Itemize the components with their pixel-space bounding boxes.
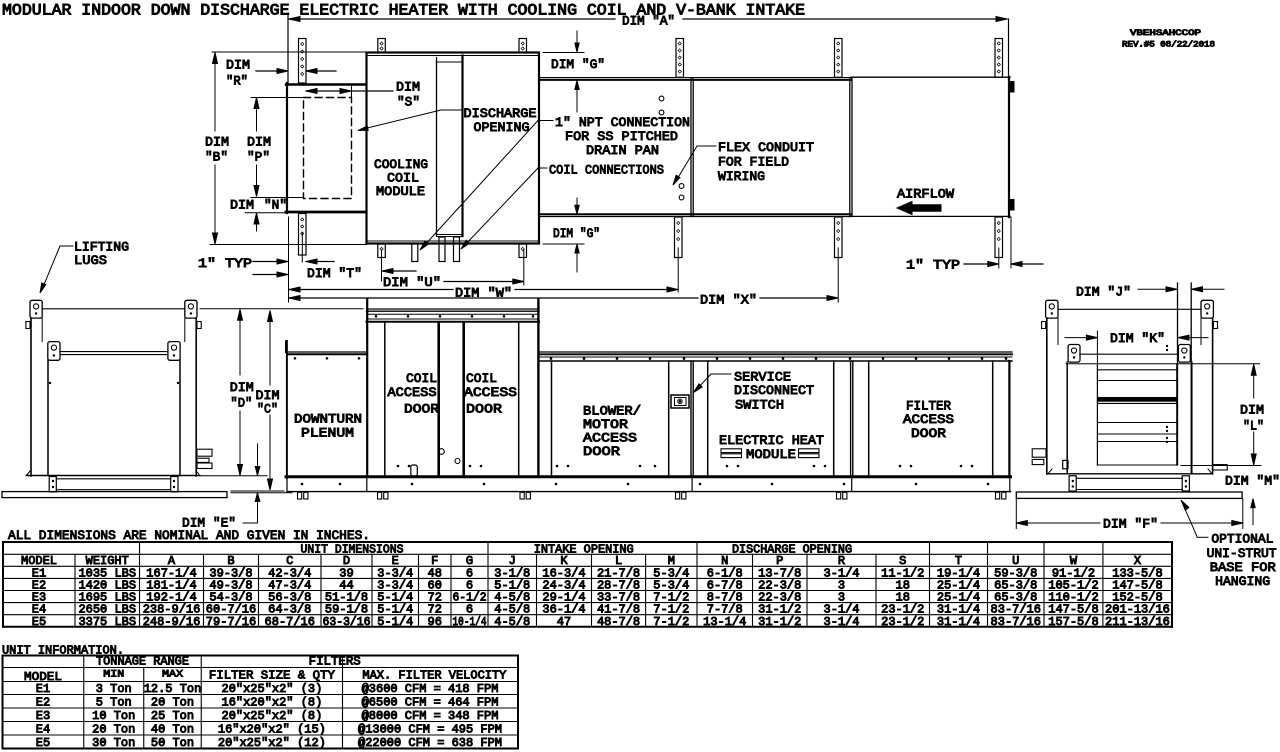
svg-text:7-1/2: 7-1/2 — [653, 615, 689, 629]
svg-text:MIN: MIN — [103, 670, 124, 681]
svg-text:DIM: DIM — [396, 80, 420, 95]
svg-text:AIRFLOW: AIRFLOW — [897, 187, 954, 202]
svg-text:16"x20"x2" (15): 16"x20"x2" (15) — [218, 723, 326, 737]
svg-text:MODULAR INDOOR DOWN DISCHARGE: MODULAR INDOOR DOWN DISCHARGE ELECTRIC H… — [2, 2, 805, 20]
svg-text:MODULE: MODULE — [746, 447, 796, 462]
svg-text:DIM "G": DIM "G" — [551, 57, 605, 72]
svg-text:@13000 CFM = 495 FPM: @13000 CFM = 495 FPM — [358, 723, 502, 737]
svg-text:FILTERS: FILTERS — [309, 654, 361, 668]
svg-text:DIM: DIM — [205, 135, 229, 150]
svg-text:UNI-STRUT: UNI-STRUT — [1207, 546, 1277, 561]
svg-text:FLEX CONDUIT: FLEX CONDUIT — [718, 140, 814, 155]
svg-text:DIM: DIM — [230, 380, 254, 395]
svg-text:DIM: DIM — [1240, 403, 1264, 418]
svg-text:ACCESS: ACCESS — [903, 412, 954, 427]
svg-text:"R": "R" — [226, 74, 248, 89]
svg-text:"L": "L" — [1243, 419, 1264, 434]
svg-text:DRAIN PAN: DRAIN PAN — [586, 143, 659, 158]
svg-text:30 Ton: 30 Ton — [92, 736, 135, 750]
svg-text:20"x25"x2" (3): 20"x25"x2" (3) — [222, 682, 323, 696]
svg-text:VBEHSAHCCOP: VBEHSAHCCOP — [1130, 29, 1201, 38]
svg-text:REV.#5 08/22/2018: REV.#5 08/22/2018 — [1122, 41, 1215, 50]
svg-text:COIL CONNECTIONS: COIL CONNECTIONS — [549, 163, 664, 178]
svg-text:FOR FIELD: FOR FIELD — [718, 155, 789, 170]
svg-text:1" TYP: 1" TYP — [906, 258, 960, 273]
svg-text:3375 LBS: 3375 LBS — [78, 615, 136, 629]
svg-text:OPENING: OPENING — [474, 120, 530, 135]
svg-text:DISCHARGE OPENING: DISCHARGE OPENING — [732, 542, 852, 556]
svg-text:DIM "F": DIM "F" — [1103, 517, 1158, 532]
svg-text:10-1/4: 10-1/4 — [453, 615, 487, 629]
svg-text:211-13/16: 211-13/16 — [1105, 615, 1170, 629]
svg-text:ALL DIMENSIONS ARE NOMINAL AND: ALL DIMENSIONS ARE NOMINAL AND GIVEN IN … — [8, 528, 370, 543]
svg-text:DISCHARGE: DISCHARGE — [464, 106, 537, 121]
svg-text:47: 47 — [557, 615, 571, 629]
svg-text:248-9/16: 248-9/16 — [143, 615, 201, 629]
svg-text:31-1/2: 31-1/2 — [758, 615, 801, 629]
svg-text:LUGS: LUGS — [74, 253, 107, 268]
svg-text:"N": "N" — [264, 198, 287, 213]
svg-text:HANGING: HANGING — [1215, 574, 1270, 589]
svg-text:E2: E2 — [36, 696, 50, 710]
svg-text:157-5/8: 157-5/8 — [1048, 615, 1098, 629]
svg-text:OPTIONAL: OPTIONAL — [1211, 532, 1273, 547]
svg-text:E5: E5 — [32, 615, 46, 629]
svg-text:@22000 CFM = 638 FPM: @22000 CFM = 638 FPM — [358, 736, 502, 750]
svg-text:MAX: MAX — [162, 670, 183, 681]
svg-text:31-1/4: 31-1/4 — [937, 615, 980, 629]
svg-text:@8000 CFM = 348 FPM: @8000 CFM = 348 FPM — [362, 709, 499, 723]
svg-text:@6500 CFM = 464 FPM: @6500 CFM = 464 FPM — [362, 696, 499, 710]
svg-text:20"x25"x2" (8): 20"x25"x2" (8) — [222, 709, 323, 723]
svg-text:DIM: DIM — [230, 198, 254, 213]
svg-text:"P": "P" — [247, 150, 270, 165]
svg-text:DIM: DIM — [226, 58, 250, 73]
svg-text:"B": "B" — [205, 150, 228, 165]
svg-text:FOR SS PITCHED: FOR SS PITCHED — [565, 129, 678, 144]
svg-text:DOOR: DOOR — [466, 402, 502, 417]
svg-text:DIM "J": DIM "J" — [1076, 285, 1131, 300]
svg-text:DIM "T": DIM "T" — [307, 266, 362, 281]
svg-text:DOOR: DOOR — [583, 444, 620, 459]
svg-text:WIRING: WIRING — [718, 169, 765, 184]
svg-text:48-7/8: 48-7/8 — [597, 615, 640, 629]
svg-text:MAX. FILTER VELOCITY: MAX. FILTER VELOCITY — [362, 669, 506, 683]
svg-text:23-1/2: 23-1/2 — [881, 615, 924, 629]
svg-text:10 Ton: 10 Ton — [92, 709, 135, 723]
svg-text:DIM "G": DIM "G" — [553, 226, 600, 241]
svg-text:BASE FOR: BASE FOR — [1210, 560, 1276, 575]
svg-text:DIM "A": DIM "A" — [622, 14, 675, 29]
svg-text:"D": "D" — [230, 396, 252, 411]
svg-text:"S": "S" — [397, 95, 420, 110]
svg-text:63-3/16: 63-3/16 — [323, 615, 371, 629]
svg-text:13-1/4: 13-1/4 — [703, 615, 746, 629]
svg-text:DIM "X": DIM "X" — [700, 293, 757, 308]
svg-text:DISCONNECT: DISCONNECT — [734, 383, 814, 398]
svg-text:SWITCH: SWITCH — [735, 398, 784, 413]
svg-text:20 Ton: 20 Ton — [92, 723, 135, 737]
svg-text:DIM "K": DIM "K" — [1110, 331, 1165, 346]
svg-text:DOOR: DOOR — [404, 402, 439, 417]
svg-text:TONNAGE RANGE: TONNAGE RANGE — [96, 654, 189, 668]
svg-text:DOWNTURN: DOWNTURN — [294, 412, 362, 427]
svg-text:1" NPT CONNECTION: 1" NPT CONNECTION — [555, 115, 690, 130]
svg-text:12.5 Ton: 12.5 Ton — [144, 682, 202, 696]
svg-text:16"x20"x2" (8): 16"x20"x2" (8) — [222, 696, 323, 710]
svg-text:5 Ton: 5 Ton — [96, 696, 132, 710]
svg-text:"C": "C" — [257, 402, 278, 417]
svg-text:20"x25"x2" (12): 20"x25"x2" (12) — [218, 736, 326, 750]
svg-text:20 Ton: 20 Ton — [151, 696, 194, 710]
svg-text:PLENUM: PLENUM — [301, 426, 354, 441]
svg-text:DIM: DIM — [247, 135, 271, 150]
svg-text:E1: E1 — [36, 682, 50, 696]
svg-text:1" TYP: 1" TYP — [198, 256, 252, 271]
svg-text:FILTER SIZE & QTY: FILTER SIZE & QTY — [209, 669, 335, 683]
svg-text:@3600 CFM = 418 FPM: @3600 CFM = 418 FPM — [362, 682, 499, 696]
svg-text:96: 96 — [428, 615, 442, 629]
svg-text:ACCESS: ACCESS — [388, 385, 437, 400]
svg-text:83-7/16: 83-7/16 — [991, 615, 1041, 629]
svg-text:DIM "U": DIM "U" — [383, 275, 441, 290]
svg-text:68-7/16: 68-7/16 — [265, 615, 315, 629]
svg-text:3 Ton: 3 Ton — [96, 682, 132, 696]
svg-text:79-7/16: 79-7/16 — [206, 615, 256, 629]
svg-text:DOOR: DOOR — [911, 426, 946, 441]
svg-text:UNIT DIMENSIONS: UNIT DIMENSIONS — [301, 542, 404, 556]
svg-text:MODULE: MODULE — [376, 184, 425, 199]
svg-text:COIL: COIL — [466, 371, 497, 386]
svg-text:E3: E3 — [36, 709, 50, 723]
svg-text:25 Ton: 25 Ton — [151, 709, 194, 723]
svg-text:50 Ton: 50 Ton — [151, 736, 194, 750]
svg-text:COIL: COIL — [406, 371, 437, 386]
svg-text:4-5/8: 4-5/8 — [494, 615, 530, 629]
svg-text:5-1/4: 5-1/4 — [377, 615, 413, 629]
svg-text:DIM "M": DIM "M" — [1225, 474, 1280, 489]
svg-text:E4: E4 — [36, 723, 50, 737]
svg-text:ACCESS: ACCESS — [464, 385, 517, 400]
svg-text:ELECTRIC HEAT: ELECTRIC HEAT — [719, 433, 824, 448]
svg-text:40 Ton: 40 Ton — [151, 723, 194, 737]
svg-text:E5: E5 — [36, 736, 50, 750]
svg-text:3-1/4: 3-1/4 — [824, 615, 860, 629]
